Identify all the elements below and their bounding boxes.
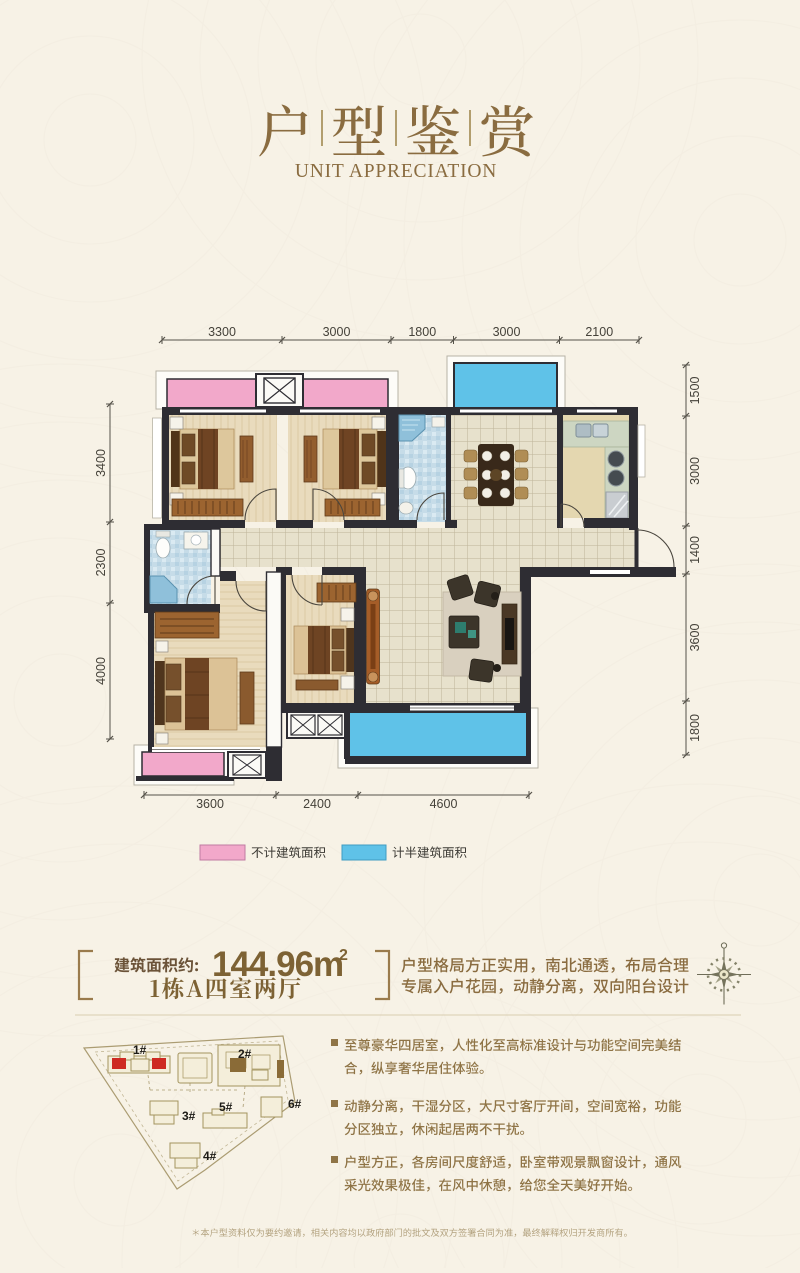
svg-text:5#: 5#	[219, 1100, 233, 1114]
svg-text:3600: 3600	[688, 624, 702, 652]
svg-text:2300: 2300	[94, 549, 108, 577]
svg-text:2100: 2100	[585, 325, 613, 339]
svg-text:3#: 3#	[182, 1109, 196, 1123]
svg-text:6#: 6#	[288, 1097, 302, 1111]
svg-text:3000: 3000	[688, 457, 702, 485]
svg-text:2#: 2#	[238, 1047, 252, 1061]
svg-text:4600: 4600	[430, 797, 458, 811]
svg-text:2400: 2400	[303, 797, 331, 811]
svg-text:UNIT APPRECIATION: UNIT APPRECIATION	[295, 161, 497, 182]
svg-text:1#: 1#	[133, 1043, 147, 1057]
svg-text:4000: 4000	[94, 657, 108, 685]
svg-text:144.96m: 144.96m	[212, 945, 343, 984]
svg-text:4#: 4#	[203, 1149, 217, 1163]
svg-text:3400: 3400	[94, 449, 108, 477]
svg-text:3000: 3000	[493, 325, 521, 339]
svg-text:1800: 1800	[408, 325, 436, 339]
svg-text:1800: 1800	[688, 714, 702, 742]
svg-text:3000: 3000	[323, 325, 351, 339]
svg-text:2: 2	[339, 947, 348, 964]
svg-text:1500: 1500	[688, 377, 702, 405]
svg-text:3600: 3600	[196, 797, 224, 811]
svg-text:1400: 1400	[688, 536, 702, 564]
svg-text:3300: 3300	[208, 325, 236, 339]
